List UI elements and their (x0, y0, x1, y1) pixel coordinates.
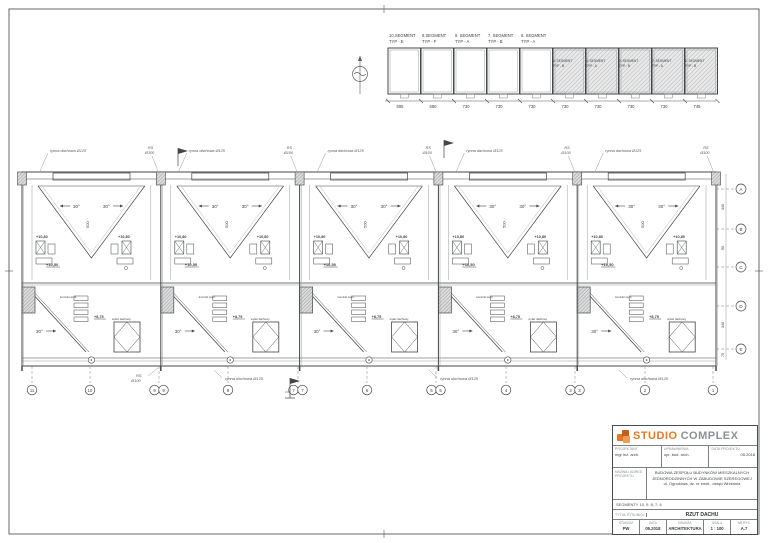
keyplan-seg-type: TYP - F (422, 39, 437, 44)
segment-lower-roof-instance (161, 287, 279, 363)
segment-upper-roof-instance (448, 173, 567, 280)
keyplan-dim: 745 (694, 104, 702, 109)
dim-right: 90 (721, 246, 725, 250)
field-value: upr. bud. arch. (664, 452, 707, 457)
keyplan-seg-type: TYP - B (553, 64, 564, 68)
gutter-label: rynna dachowa Ø125 (50, 149, 87, 153)
keyplan-seg-type: TYP - A (652, 64, 664, 68)
gutter-label: rynna dachowa Ø125 (605, 149, 642, 153)
downpipe-dia-label: Ø100 (130, 378, 142, 383)
keyplan-segment-box (487, 48, 520, 94)
keyplan-segment-box (421, 48, 454, 94)
field-label: UPRAWNIENIA (664, 447, 707, 451)
segment-lower-roof-instance (438, 287, 556, 363)
field-label: BRANŻA (667, 521, 703, 525)
gutter-bottom-label: rynna dachowa Ø120 (225, 376, 264, 381)
downpipe-label: RS (426, 146, 432, 150)
bottom-annotations: RS Ø100 rynna dachowa Ø120 rynna dachowa… (130, 368, 669, 398)
project-name-row: NAZWA I ADRES PROJEKTU BUDOWA ZESPOŁU BU… (613, 468, 757, 500)
segment-lower-roof-instance (577, 287, 695, 363)
keyplan-seg-type: TYP - A (586, 64, 598, 68)
keyplan-segment-box (586, 48, 619, 94)
north-arrow-icon (353, 56, 368, 94)
segment-upper-roof-instance (171, 173, 290, 280)
segment-upper-roof-instance (587, 173, 706, 280)
keyplan-dim: 730 (562, 104, 570, 109)
studio-complex-logo-icon (617, 429, 630, 442)
benchmark-flag-icon (178, 148, 188, 166)
drawing-title-value: RZUT DACHU (647, 512, 757, 518)
field-value: A.7 (731, 526, 757, 531)
keyplan-dim: 695 (397, 104, 405, 109)
key-plan: 10.SEGMENT TYP - E 9.SEGMENT TYP - F 8. … (353, 33, 720, 109)
keyplan-seg-label: 1. SEGMENT (685, 59, 704, 63)
keyplan-seg-label: 5. SEGMENT (553, 59, 572, 63)
keyplan-segment-box (520, 48, 553, 94)
field-label: DATA (640, 521, 666, 525)
keyplan-dim: 730 (463, 104, 471, 109)
keyplan-seg-label: 8. SEGMENT (455, 33, 481, 38)
keyplan-seg-label: 7. SEGMENT (488, 33, 514, 38)
gutter-label: rynna dachowa Ø125 (328, 149, 365, 153)
keyplan-dim: 680 (430, 104, 438, 109)
project-name-label: NAZWA I ADRES PROJEKTU (613, 468, 647, 499)
field-label: STADIUM (613, 521, 639, 525)
logo-studio-text: STUDIO (633, 430, 678, 442)
keyplan-dim: 730 (529, 104, 537, 109)
keyplan-dim: 730 (496, 104, 504, 109)
keyplan-dim: 730 (661, 104, 669, 109)
axis-bubble-label: A (739, 187, 742, 192)
keyplan-seg-label: 6. SEGMENT (521, 33, 547, 38)
logo-row: STUDIO COMPLEX (613, 426, 757, 446)
segment-lower-roof-instance (300, 287, 418, 363)
project-line: ul. Ogrodowa, dz. nr ewid., obręb Wrześn… (650, 481, 754, 487)
field-label: DATA PROJEKTU (711, 447, 755, 451)
keyplan-seg-type: TYP - B (619, 64, 630, 68)
keyplan-seg-label: 2. SEGMENT (652, 59, 671, 63)
keyplan-seg-label: 4. SEGMENT (586, 59, 605, 63)
drawing-title-row: TYTUŁ RYSUNKU RZUT DACHU (613, 510, 757, 520)
field-value: 1 : 100 (704, 526, 730, 531)
keyplan-dim: 730 (628, 104, 636, 109)
downpipe-label: RS (703, 146, 709, 150)
downpipe-dia-label: Ø100 (560, 151, 571, 155)
field-value: 05.2018 (711, 452, 755, 457)
keyplan-seg-label: 10.SEGMENT (389, 33, 416, 38)
dim-right: 340 (721, 204, 725, 210)
axis-bubble-label: E (739, 347, 742, 352)
keyplan-segment-box (619, 48, 652, 94)
field-value: PW (613, 526, 639, 531)
segments-text: SEGMENTY 10, 9, 8, 7, 6 (616, 502, 662, 507)
grid-axes-right: A B C D E 340 90 340 75 (716, 174, 746, 360)
gutter-bottom-label: rynna dachowa Ø120 (440, 376, 479, 381)
field-label: NR RYS. (731, 521, 757, 525)
gutter-label: rynna dachowa Ø125 (466, 149, 503, 153)
keyplan-dim: 730 (595, 104, 603, 109)
keyplan-seg-label: 3. SEGMENT (619, 59, 638, 63)
benchmark-flag-icon (444, 140, 454, 158)
keyplan-seg-type: TYP - A (521, 39, 536, 44)
keyplan-segment-box (553, 48, 586, 94)
keyplan-segment-box (454, 48, 487, 94)
downpipe-dia-label: Ø100 (283, 151, 294, 155)
gutter-label: rynna dachowa Ø125 (189, 149, 226, 153)
project-line: BUDOWA ZESPOŁU BUDYNKÓW MIESZKALNYCH (650, 470, 754, 476)
downpipe-label: RS (287, 146, 293, 150)
axis-bubble-label: 10 (88, 388, 93, 393)
dim-right: 75 (721, 353, 725, 357)
segment-upper-roof-instance (32, 173, 151, 280)
logo-complex-text: COMPLEX (681, 430, 739, 442)
drawing-sheet: 30° 30° 500 +10,50 +10,80 +10,80 (0, 0, 768, 543)
keyplan-seg-label: 9.SEGMENT (422, 33, 447, 38)
field-value: mgr inż. arch. (615, 452, 659, 457)
segments-row: SEGMENTY 10, 9, 8, 7, 6 (613, 500, 757, 510)
gutter-bottom-label: rynna dachowa Ø120 (630, 376, 669, 381)
axis-bubble-label: B (739, 227, 742, 232)
downpipe-label: RS (564, 146, 570, 150)
title-block-footer: STADIUM PW DATA 05.2018 BRANŻA ARCHITEKT… (613, 520, 757, 534)
field-label: PROJEKTANT (615, 447, 659, 451)
segment-upper-roof-instance (310, 173, 429, 280)
keyplan-segment-box (652, 48, 685, 94)
segment-lower-roof-instance (22, 287, 140, 363)
keyplan-seg-type: TYP - B (488, 39, 503, 44)
field-label: SKALA (704, 521, 730, 525)
dim-right: 340 (721, 322, 725, 328)
axis-bubble-label: 11 (30, 388, 35, 393)
keyplan-seg-type: TYP - A (455, 39, 470, 44)
title-block: STUDIO COMPLEX PROJEKTANT mgr inż. arch.… (612, 425, 758, 535)
keyplan-segment-box (388, 48, 421, 94)
downpipe-dia-label: Ø100 (144, 151, 155, 155)
designer-row: PROJEKTANT mgr inż. arch. UPRAWNIENIA up… (613, 446, 757, 468)
field-value: 05.2018 (640, 526, 666, 531)
drawing-title-label: TYTUŁ RYSUNKU (613, 513, 647, 517)
keyplan-seg-type: TYP - B (685, 64, 696, 68)
downpipe-dia-label: Ø100 (422, 151, 433, 155)
keyplan-seg-type: TYP - E (389, 39, 404, 44)
downpipe-dia-label: Ø100 (699, 151, 710, 155)
main-roof-plan: rynna dachowa Ø125RSØ100rynna dachowa Ø1… (18, 140, 747, 398)
keyplan-segment-box (685, 48, 718, 94)
field-value: ARCHITEKTURA (667, 526, 703, 531)
downpipe-label: RS (148, 146, 154, 150)
